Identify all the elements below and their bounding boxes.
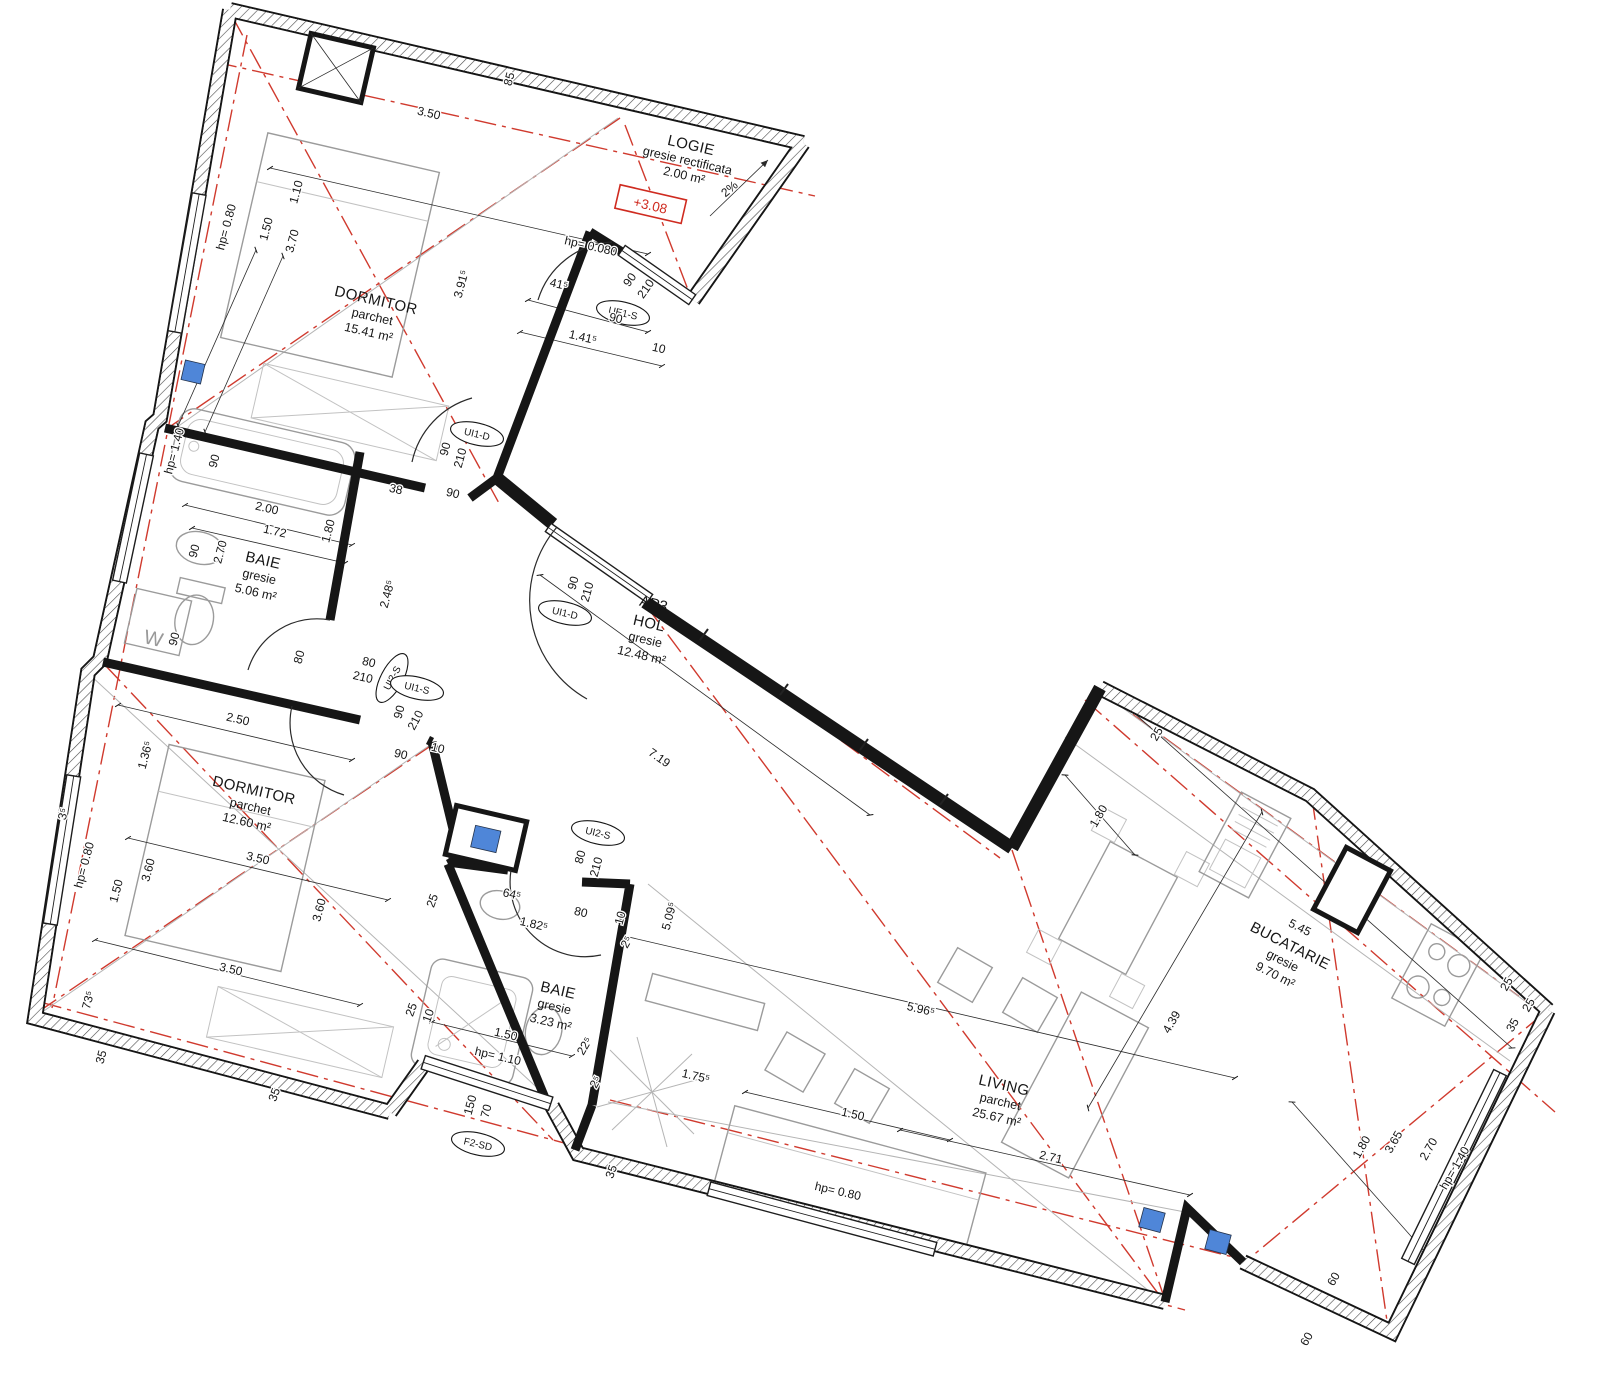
dim-label: 210: [587, 855, 606, 878]
dim-label: 90: [437, 440, 454, 457]
plant-icon: [597, 1037, 707, 1147]
room-label-dormitor2: DORMITOR parchet 12.60 m²: [204, 773, 297, 839]
dim-label: 41⁵: [548, 275, 569, 293]
armchair-2: [1003, 978, 1058, 1033]
room-label-logie: LOGIE gresie rectificata 2.00 m²: [638, 127, 737, 192]
washing-machine-label: W: [142, 626, 165, 652]
opening-tag-ui2s-baie2: UI2-S: [569, 816, 627, 850]
window-baie1: [113, 453, 154, 583]
chimney-shaft: [299, 34, 374, 103]
dim-label: 2.70: [210, 539, 230, 565]
dim-label: 3.91⁵: [451, 268, 472, 299]
dim-label: 90: [206, 452, 223, 469]
column-left-wall: [181, 360, 205, 384]
dim-label: 150: [461, 1093, 480, 1116]
dim-label: hp= 0.80: [813, 1179, 862, 1203]
dim-label: 1.82⁵: [519, 914, 550, 934]
dim-label: 5.09⁵: [659, 900, 680, 931]
dim-label: 5.96⁵: [906, 999, 937, 1019]
dim-label: 2.50: [225, 710, 251, 729]
dim-label: 1.50: [840, 1105, 866, 1124]
coffee-table-1: [765, 1032, 825, 1092]
dim-label: hp= 0.80: [71, 840, 97, 889]
dim-label: 22⁵: [574, 1035, 595, 1058]
dim-label: 90: [445, 485, 461, 502]
furniture-layer: [124, 133, 1510, 1250]
door-arcs: [248, 242, 612, 957]
dining-set: [1027, 807, 1210, 1008]
dim-label: 38: [388, 481, 404, 498]
dim-label: 60: [1297, 1329, 1316, 1348]
dim-label: 90: [186, 542, 203, 559]
dim-label: 2.48⁵: [377, 578, 398, 609]
dim-label: 60: [1324, 1269, 1343, 1288]
floor-plan-sheet: LOGIE gresie rectificata 2.00 m² DORMITO…: [0, 0, 1600, 1374]
dim-label: 210: [352, 668, 375, 686]
exterior-walls: [35, 10, 1548, 1332]
dim-label: 2.00: [254, 499, 280, 518]
dim-label: hp= 1.40: [161, 426, 187, 475]
dim-label: 80: [361, 654, 377, 671]
dim-label: 1.80: [318, 518, 338, 544]
dim-label: 10: [651, 340, 667, 357]
dim-label: 80: [573, 904, 589, 921]
room-label-dormitor1: DORMITOR parchet 15.41 m²: [326, 283, 419, 349]
dim-label: 80: [572, 848, 589, 865]
dim-label: 3.50: [416, 104, 442, 123]
dim-label: 25: [402, 1001, 420, 1019]
opening-tag-ui1d-dormitor1: UI1-D: [448, 417, 506, 451]
door-arc-baie1: [248, 619, 330, 670]
dim-label: 25: [423, 892, 441, 910]
dim-label: 210: [578, 580, 597, 603]
dim-label: 80: [291, 648, 308, 665]
room-label-baie1: BAIE gresie 5.06 m²: [233, 548, 285, 604]
dim-label: 3.65: [1382, 1128, 1406, 1156]
interior-walls: [103, 232, 1243, 1302]
room-label-bucatarie: BUCATARIE gresie 9.70 m²: [1233, 919, 1333, 1001]
dim-label: 64⁵: [501, 885, 522, 903]
dim-label: 210: [451, 446, 470, 469]
kitchen-sink-icon: [1199, 792, 1291, 898]
armchair-1: [938, 948, 993, 1003]
dim-label: 1.10: [286, 179, 306, 205]
dim-label: 2.70: [1417, 1135, 1441, 1163]
dim-label: 3.50: [245, 849, 271, 868]
dim-label: 1.50: [106, 878, 126, 904]
dim-label: 2⁵: [587, 1073, 605, 1090]
dim-label: 3.70: [282, 228, 302, 254]
shafts-and-columns: [181, 34, 1390, 1255]
dim-label: 73⁵: [79, 989, 97, 1010]
dim-label: 3.60: [138, 857, 158, 883]
dim-label: 90: [166, 630, 183, 647]
room-label-hol: AP3 HOL gresie 12.48 m²: [616, 590, 679, 667]
gray-brace-lines: [38, 118, 1540, 1300]
room-label-baie2: BAIE gresie 3.23 m²: [528, 978, 580, 1034]
dim-label: 90: [393, 746, 409, 763]
dim-label: 35: [93, 1048, 110, 1065]
dim-label: 35: [1503, 1015, 1522, 1034]
dim-label: 1.72: [262, 522, 288, 541]
apartment-code: AP3: [638, 593, 669, 616]
dim-label: 1.36⁵: [135, 739, 156, 770]
door-arc-dormitor2: [290, 706, 344, 795]
dim-label: 210: [405, 708, 427, 733]
dim-label: 4.39: [1160, 1008, 1184, 1036]
dim-label: hp= 0.80: [213, 202, 239, 251]
floor-plan-drawing: LOGIE gresie rectificata 2.00 m² DORMITO…: [0, 0, 1600, 1374]
dim-label: 10: [430, 740, 446, 757]
slope-label: 2%: [718, 178, 741, 200]
dim-label: 10: [419, 1007, 437, 1025]
sideboard: [645, 973, 764, 1030]
room-label-living: LIVING parchet 25.67 m²: [970, 1072, 1031, 1130]
level-marker: +3.08: [615, 185, 687, 224]
dim-label: 90: [391, 703, 408, 720]
dim-label: 90: [565, 574, 582, 591]
dim-label: 90: [620, 270, 639, 289]
dim-label: 3.60: [309, 897, 329, 923]
dim-label: 1.80: [1350, 1133, 1374, 1161]
dim-label: 1.50: [256, 216, 276, 242]
opening-tag-f2sd: F2-SD: [449, 1127, 507, 1161]
windows-layer: [43, 193, 1506, 1265]
dim-label: 7.19: [646, 745, 673, 770]
column-notch-1: [1139, 1207, 1165, 1232]
dim-label: 70: [478, 1102, 495, 1119]
dim-label: 1.80: [1087, 802, 1111, 830]
